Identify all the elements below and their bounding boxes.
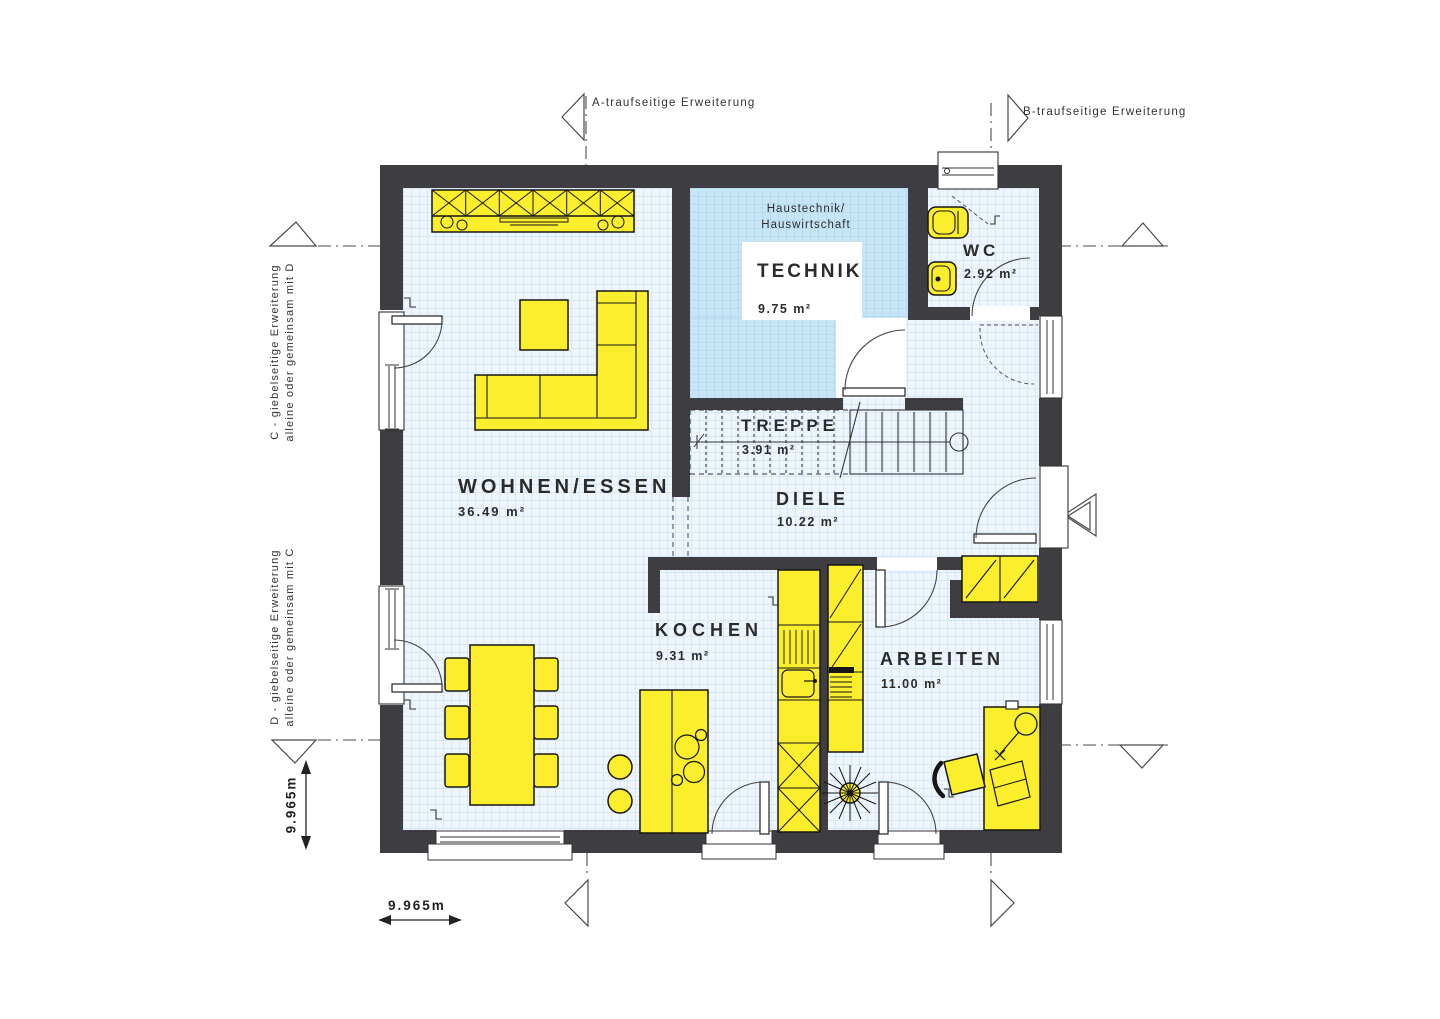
marker-d-line1: D - giebelseitige Erweiterung [268,542,283,732]
arbeiten-window [1040,620,1062,704]
marker-a-triangle [562,94,584,140]
marker-c-line1: C - giebelseitige Erweiterung [268,257,283,447]
chair [445,706,469,739]
sideboard [432,190,634,232]
kitchen-counter [778,570,820,832]
chair [445,658,469,691]
technik-note-line2: Hauswirtschaft [746,219,866,231]
tall-cabinet [828,565,863,752]
desk-chair [934,754,985,796]
marker-b-triangle [1008,95,1028,141]
open-passage [673,497,688,557]
left-door-window-top [379,312,404,430]
toilet [928,207,968,238]
room-label-arbeiten: ARBEITEN [880,649,1004,670]
chair [534,754,558,787]
marker-bottom-left-triangle [565,880,588,926]
wc-door-opening [970,306,1030,321]
desk [984,701,1040,830]
marker-c-triangle-left [270,222,316,246]
arbeiten-door-opening [877,558,937,570]
chair [445,754,469,787]
room-area-diele: 10.22 m² [777,515,839,529]
door-leaf [392,684,442,692]
coffee-table [520,300,568,350]
marker-b-label: B-traufseitige Erweiterung [1023,106,1187,118]
entrance-door-leaf [974,534,1036,543]
technik-door-leaf [843,388,905,396]
chair [534,658,558,691]
stairs [690,402,968,478]
marker-c-label: C - giebelseitige Erweiterung alleine od… [268,257,298,447]
marker-c-triangle-right [1122,223,1163,246]
chair [534,706,558,739]
marker-d-triangle-right [1120,745,1163,768]
floor-plan: WOHNEN/ESSEN 36.49 m² Haustechnik/ Hausw… [0,0,1440,1019]
dining-set [445,645,558,805]
marker-bottom-right-triangle [991,880,1014,926]
living-window-sill [428,844,572,860]
kitchen-island [608,690,708,833]
room-area-wohnen: 36.49 m² [458,504,526,519]
room-area-kochen: 9.31 m² [656,649,710,663]
wardrobe [962,556,1038,602]
room-area-treppe: 3.91 m² [742,443,796,457]
dimension-width: 9.965m [388,898,446,913]
room-area-wc: 2.92 m² [964,267,1018,281]
marker-c-line2: alleine oder gemeinsam mit D [283,257,298,447]
room-label-treppe: TREPPE [741,416,839,436]
marker-d-line2: alleine oder gemeinsam mit C [283,542,298,732]
marker-d-label: D - giebelseitige Erweiterung alleine od… [268,542,298,732]
dining-table [470,645,534,805]
marker-d-triangle-left [272,740,316,763]
room-label-wohnen: WOHNEN/ESSEN [458,476,670,499]
door-leaf [392,316,442,324]
room-label-technik: TECHNIK [757,261,862,283]
dimension-height: 9.965m [284,765,299,845]
stool [608,755,632,779]
entrance-opening [1040,466,1068,548]
door-leaf [760,782,769,834]
door-leaf [876,570,885,627]
room-area-arbeiten: 11.00 m² [881,677,942,691]
room-label-diele: DIELE [776,489,849,510]
technik-note-line1: Haustechnik/ [746,203,866,215]
marker-a-label: A-traufseitige Erweiterung [592,97,756,109]
diele-window [1040,316,1062,398]
plant [822,765,878,821]
wc-window [938,152,998,189]
room-label-kochen: KOCHEN [655,620,763,641]
stool [608,789,632,813]
wash-basin [928,262,956,295]
plan-linework [0,0,1440,1019]
room-area-technik: 9.75 m² [758,302,812,316]
room-label-wc: WC [963,241,999,261]
door-leaf [879,782,888,834]
